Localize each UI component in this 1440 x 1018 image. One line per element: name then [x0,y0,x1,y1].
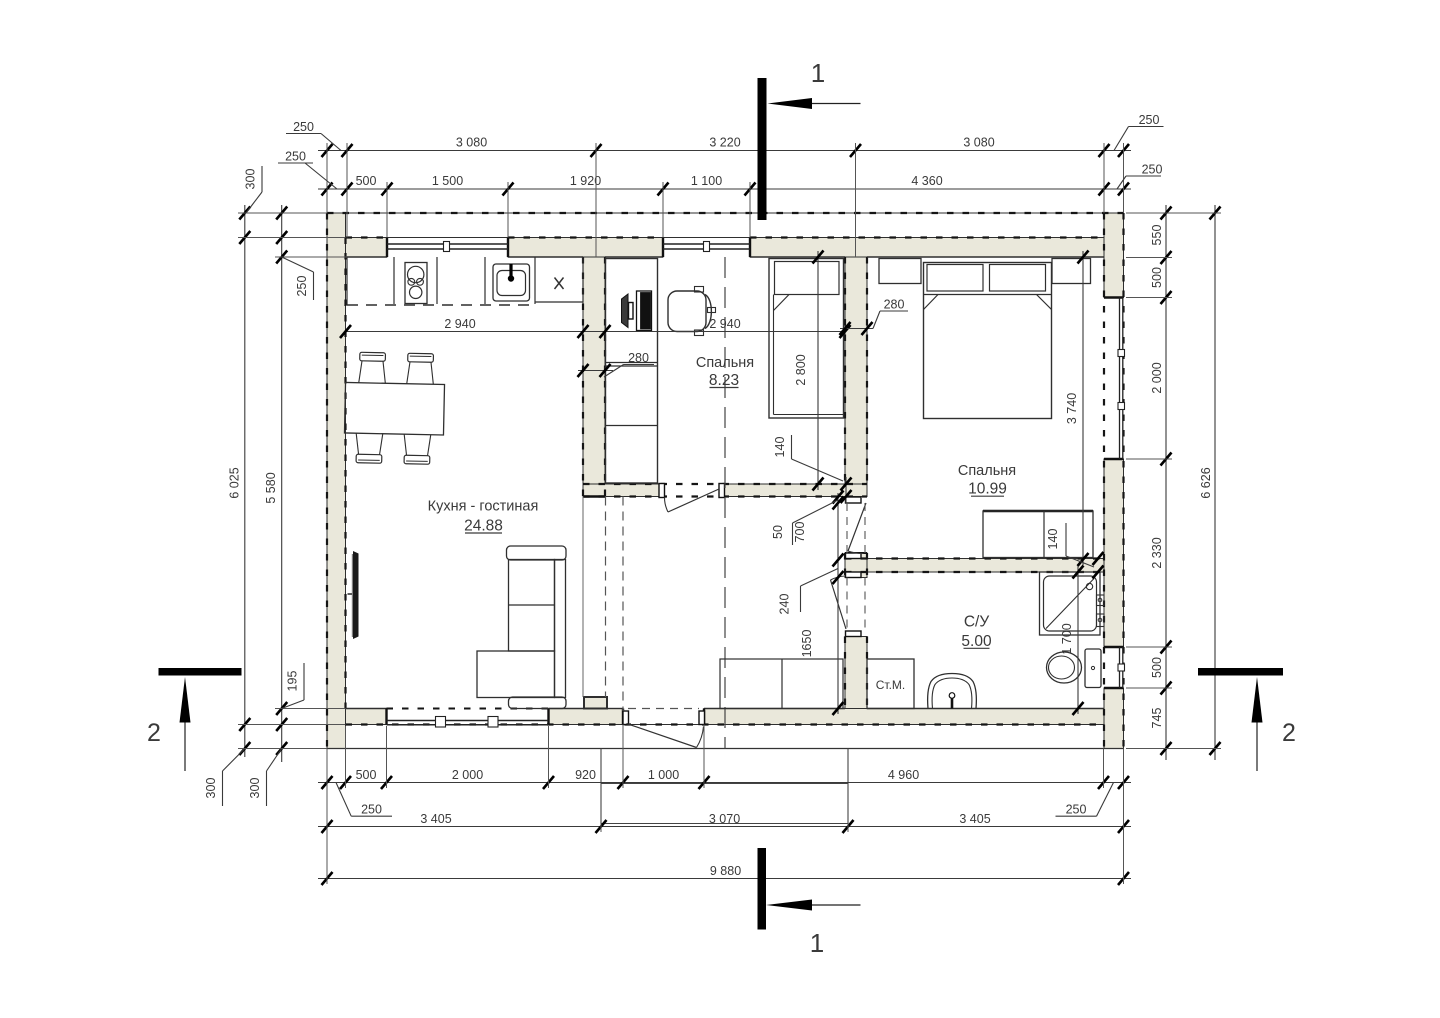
svg-text:550: 550 [1150,225,1164,246]
svg-text:250: 250 [1066,803,1087,817]
svg-text:Спальня: Спальня [696,355,754,371]
svg-text:280: 280 [884,298,905,312]
svg-text:920: 920 [575,768,596,782]
svg-text:Спальня: Спальня [958,463,1016,479]
svg-text:280: 280 [628,351,649,365]
svg-text:6 025: 6 025 [228,467,242,498]
svg-text:1650: 1650 [800,630,814,658]
svg-text:4 960: 4 960 [888,768,919,782]
svg-text:2 940: 2 940 [444,317,475,331]
svg-text:9 880: 9 880 [710,864,741,878]
svg-text:745: 745 [1150,708,1164,729]
svg-text:250: 250 [1139,113,1160,127]
svg-text:250: 250 [285,150,306,164]
svg-text:5 580: 5 580 [264,472,278,503]
svg-text:700: 700 [793,522,807,543]
svg-text:1 000: 1 000 [648,768,679,782]
svg-text:2 000: 2 000 [1150,362,1164,393]
svg-text:5.00: 5.00 [961,633,992,650]
svg-text:250: 250 [295,276,309,297]
svg-text:500: 500 [1150,267,1164,288]
svg-text:300: 300 [204,778,218,799]
svg-text:3 080: 3 080 [456,136,487,150]
svg-text:500: 500 [356,174,377,188]
svg-text:2: 2 [147,719,161,747]
svg-text:2: 2 [1282,719,1296,747]
svg-text:С/У: С/У [964,614,990,631]
svg-text:3 070: 3 070 [709,812,740,826]
svg-text:10.99: 10.99 [968,481,1007,498]
svg-text:Ст.М.: Ст.М. [876,678,906,692]
svg-text:1: 1 [811,58,825,88]
svg-text:3 220: 3 220 [709,136,740,150]
svg-text:2 940: 2 940 [709,317,740,331]
svg-text:2 800: 2 800 [794,354,808,385]
svg-text:4 360: 4 360 [911,174,942,188]
svg-text:140: 140 [1046,529,1060,550]
svg-text:2 000: 2 000 [452,768,483,782]
svg-text:500: 500 [356,768,377,782]
svg-text:24.88: 24.88 [464,518,503,535]
svg-text:3 405: 3 405 [420,812,451,826]
svg-text:3 080: 3 080 [963,136,994,150]
svg-text:3 405: 3 405 [959,812,990,826]
svg-text:1 100: 1 100 [691,174,722,188]
svg-text:3 740: 3 740 [1065,393,1079,424]
svg-text:300: 300 [244,169,258,190]
svg-text:1 500: 1 500 [432,174,463,188]
svg-text:250: 250 [1142,163,1163,177]
svg-text:2 330: 2 330 [1150,537,1164,568]
svg-text:140: 140 [773,437,787,458]
svg-text:250: 250 [293,120,314,134]
svg-text:8.23: 8.23 [709,372,739,389]
svg-text:1 700: 1 700 [1060,623,1074,654]
svg-text:Кухня - гостиная: Кухня - гостиная [428,499,539,515]
svg-text:6 626: 6 626 [1199,467,1213,498]
svg-text:1: 1 [810,928,824,958]
svg-text:50: 50 [771,525,785,539]
svg-text:195: 195 [286,671,300,692]
svg-text:240: 240 [778,594,792,615]
svg-text:250: 250 [361,803,382,817]
svg-text:300: 300 [248,778,262,799]
svg-text:500: 500 [1150,657,1164,678]
